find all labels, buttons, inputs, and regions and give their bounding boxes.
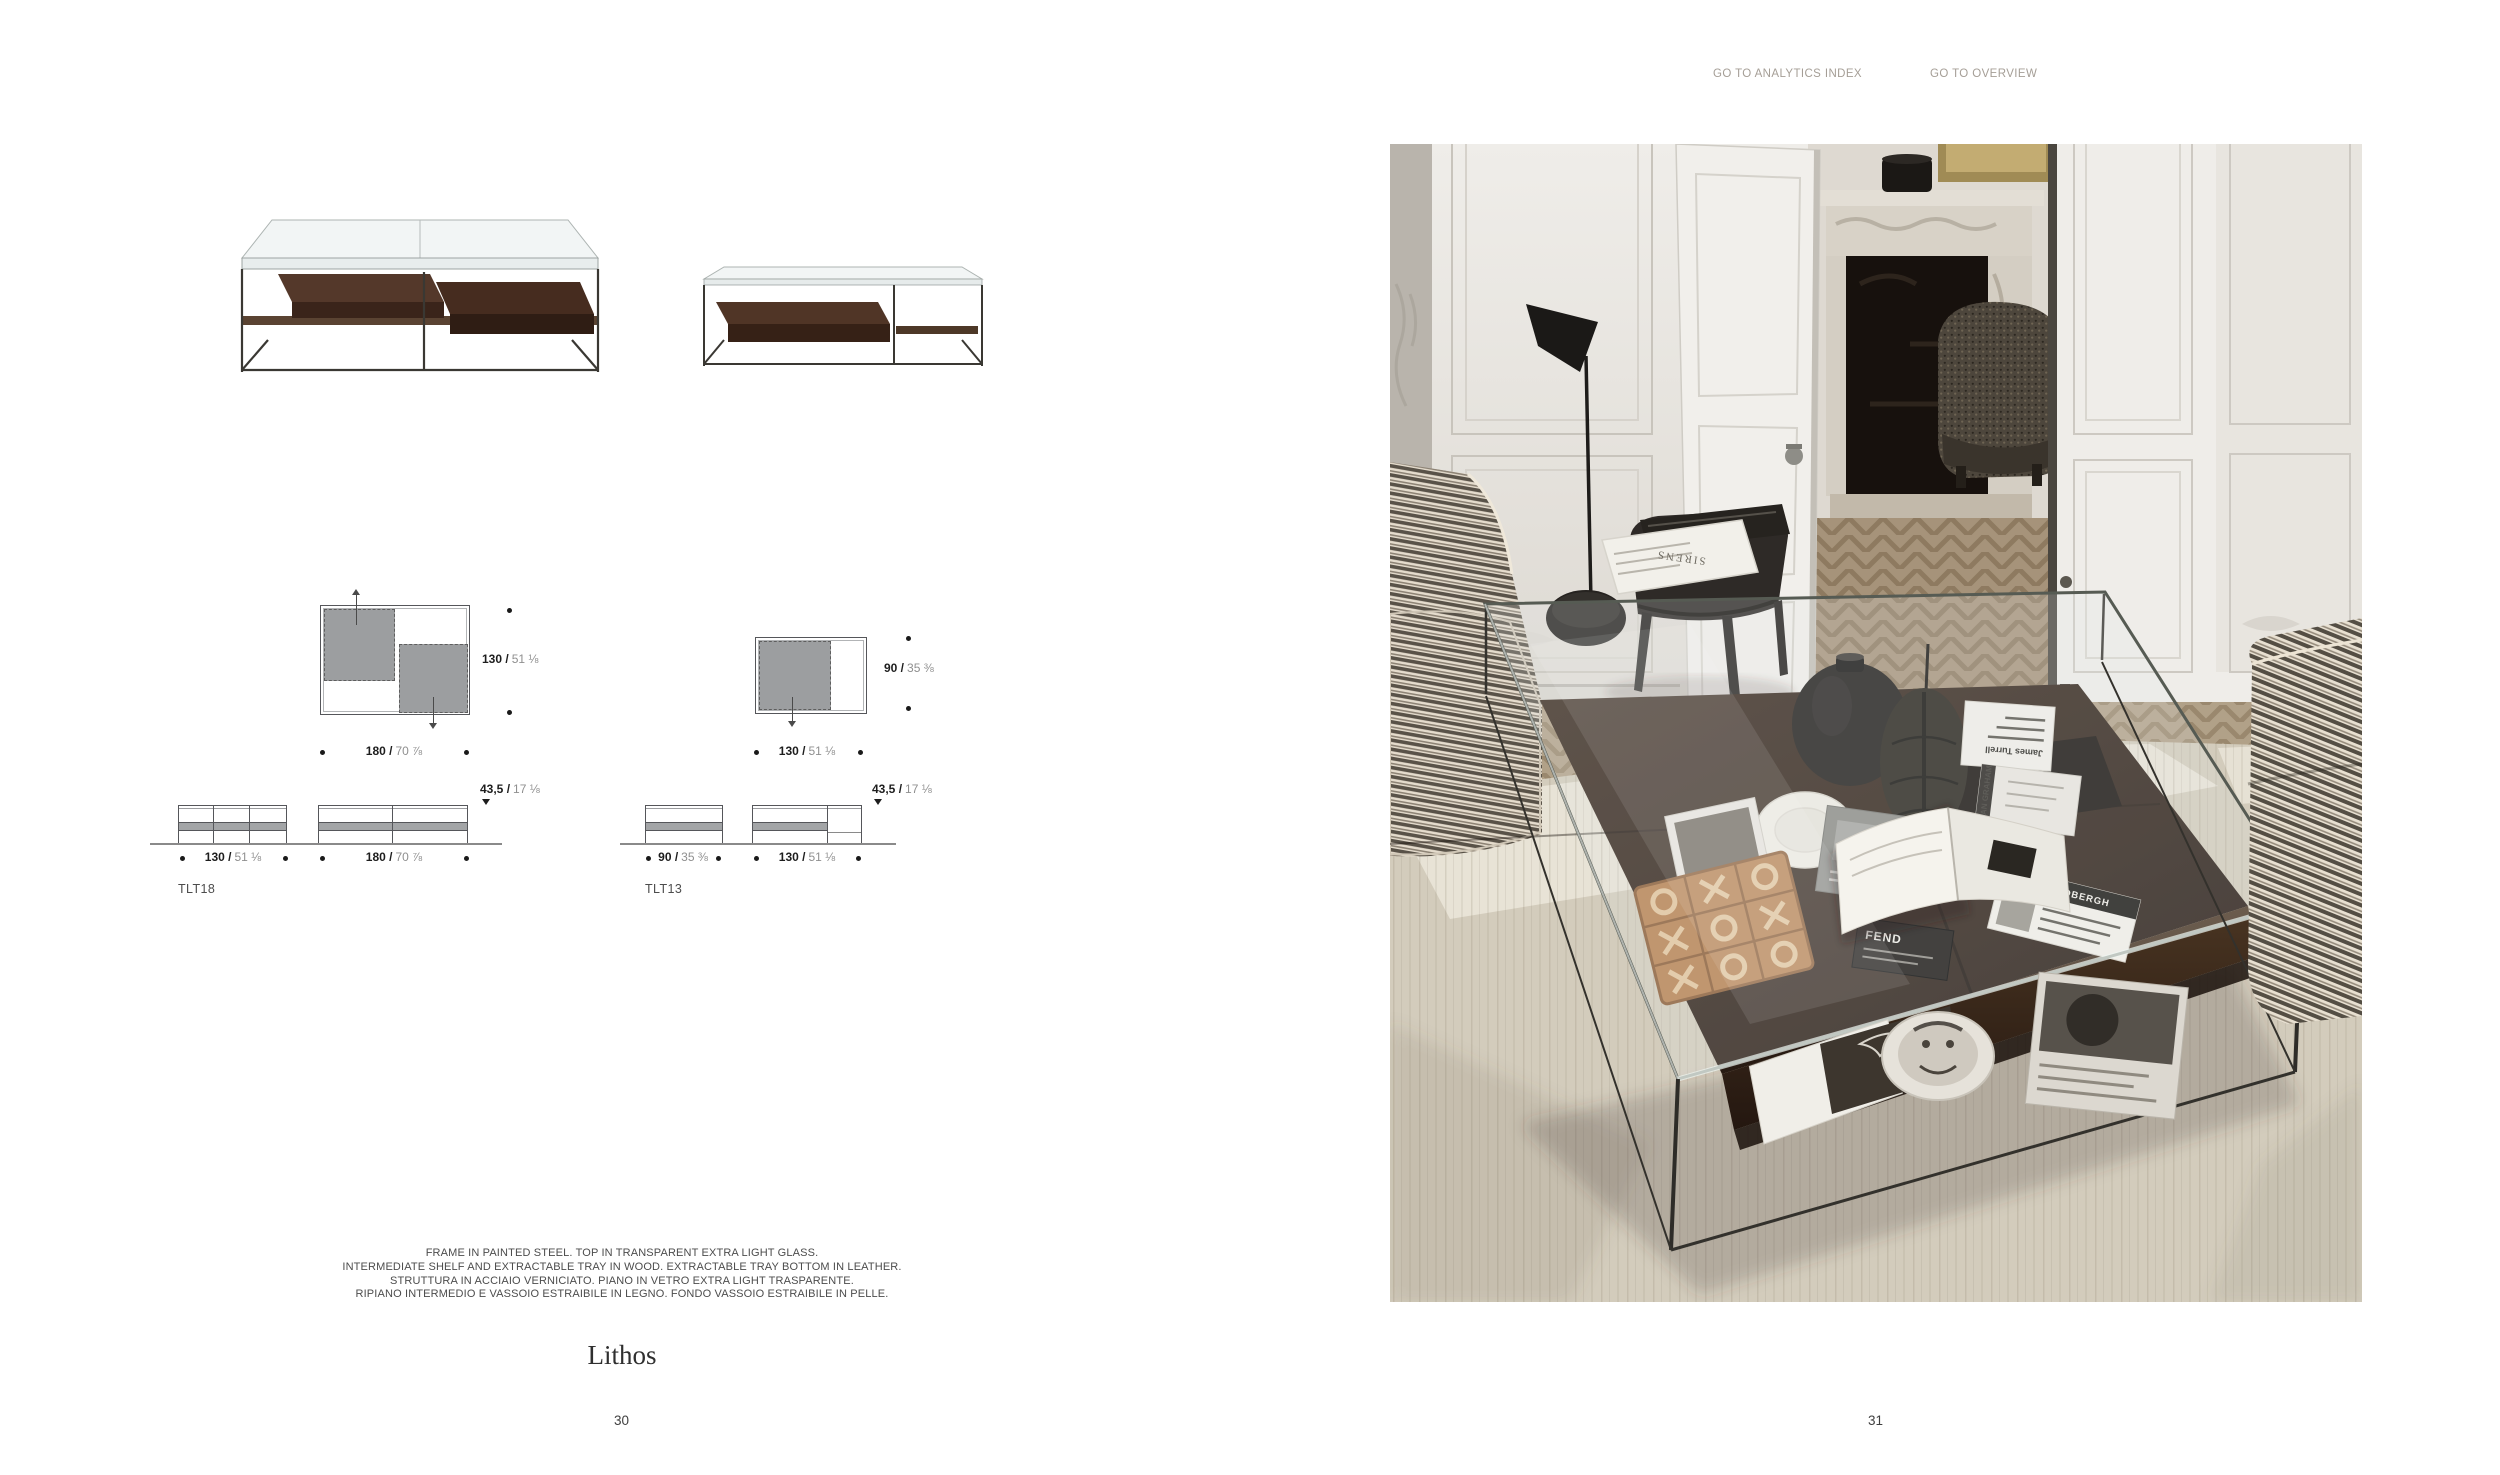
description-line: INTERMEDIATE SHELF AND EXTRACTABLE TRAY … [272,1261,972,1275]
black-vessel [1882,154,1932,192]
dimension-dot [646,856,651,861]
description-line: FRAME IN PAINTED STEEL. TOP IN TRANSPARE… [272,1247,972,1261]
dimension-dot [906,636,911,641]
dimension-dot [283,856,288,861]
door-hinge [2060,576,2072,588]
striped-pouf [2248,618,2362,1024]
dimension-label: 90 /35 ⅜ [884,661,934,675]
dimension-label: 180 /70 ⅞ [366,744,422,758]
magazine-stack [2025,972,2188,1119]
height-marker-icon [874,799,882,805]
extractable-tray [324,609,395,681]
nav-overview-link[interactable]: GO TO OVERVIEW [1930,68,2037,80]
elevation-tlt18-130 [178,805,287,845]
arrow-down-icon [429,723,437,729]
elevation-tlt13-130 [752,805,862,845]
ground-line [620,843,896,845]
nav-analytics-index-link[interactable]: GO TO ANALYTICS INDEX [1713,68,1862,80]
dimension-dot [716,856,721,861]
ground-line [150,843,502,845]
dimension-dot [464,750,469,755]
photo-scene: SIRENS [1390,144,2362,1302]
dimension-dot [906,706,911,711]
product-render-tlt13 [696,264,988,370]
tray-direction-arrow [792,697,793,722]
page-number-right: 31 [1868,1413,1883,1428]
dimension-dot [754,856,759,861]
dimension-dot [858,750,863,755]
dimension-dot [507,710,512,715]
tray-direction-arrow [356,594,357,625]
dimension-dot [320,750,325,755]
page-number-left: 30 [614,1413,629,1428]
dimension-dot [464,856,469,861]
tray-direction-arrow [433,697,434,724]
catalog-spread: GO TO ANALYTICS INDEX GO TO OVERVIEW [0,0,2500,1475]
product-code: TLT18 [178,882,215,896]
product-render-tlt18 [228,212,612,378]
product-code: TLT13 [645,882,682,896]
dimension-label: 180 /70 ⅞ [366,850,422,864]
arrow-down-icon [788,721,796,727]
lifestyle-photo: SIRENS [1390,144,2362,1302]
dimension-dot [507,608,512,613]
description-line: STRUTTURA IN ACCIAIO VERNICIATO. PIANO I… [272,1275,972,1289]
dimension-label: 130 /51 ⅛ [482,652,538,666]
dimension-label: 130 /51 ⅛ [779,850,835,864]
arrow-up-icon [352,589,360,595]
height-marker-icon [482,799,490,805]
plan-diagram-tlt13 [755,637,867,714]
plan-diagram-tlt18 [320,605,470,715]
dimension-dot [320,856,325,861]
elevation-tlt13-90 [645,805,723,845]
dimension-label: 130 /51 ⅛ [205,850,261,864]
dimension-label: 90 /35 ⅜ [658,850,708,864]
dimension-dot [180,856,185,861]
elevation-tlt18-180 [318,805,468,845]
description-line: RIPIANO INTERMEDIO E VASSOIO ESTRAIBILE … [272,1288,972,1302]
dimension-dot [754,750,759,755]
door-handle [1785,447,1803,465]
height-label: 43,5 /17 ⅛ [872,782,932,796]
extractable-tray [759,641,831,710]
dimension-dot [856,856,861,861]
dimension-label: 130 /51 ⅛ [779,744,835,758]
collection-name: Lithos [522,1340,722,1371]
height-label: 43,5 /17 ⅛ [480,782,540,796]
material-description: FRAME IN PAINTED STEEL. TOP IN TRANSPARE… [272,1247,972,1302]
